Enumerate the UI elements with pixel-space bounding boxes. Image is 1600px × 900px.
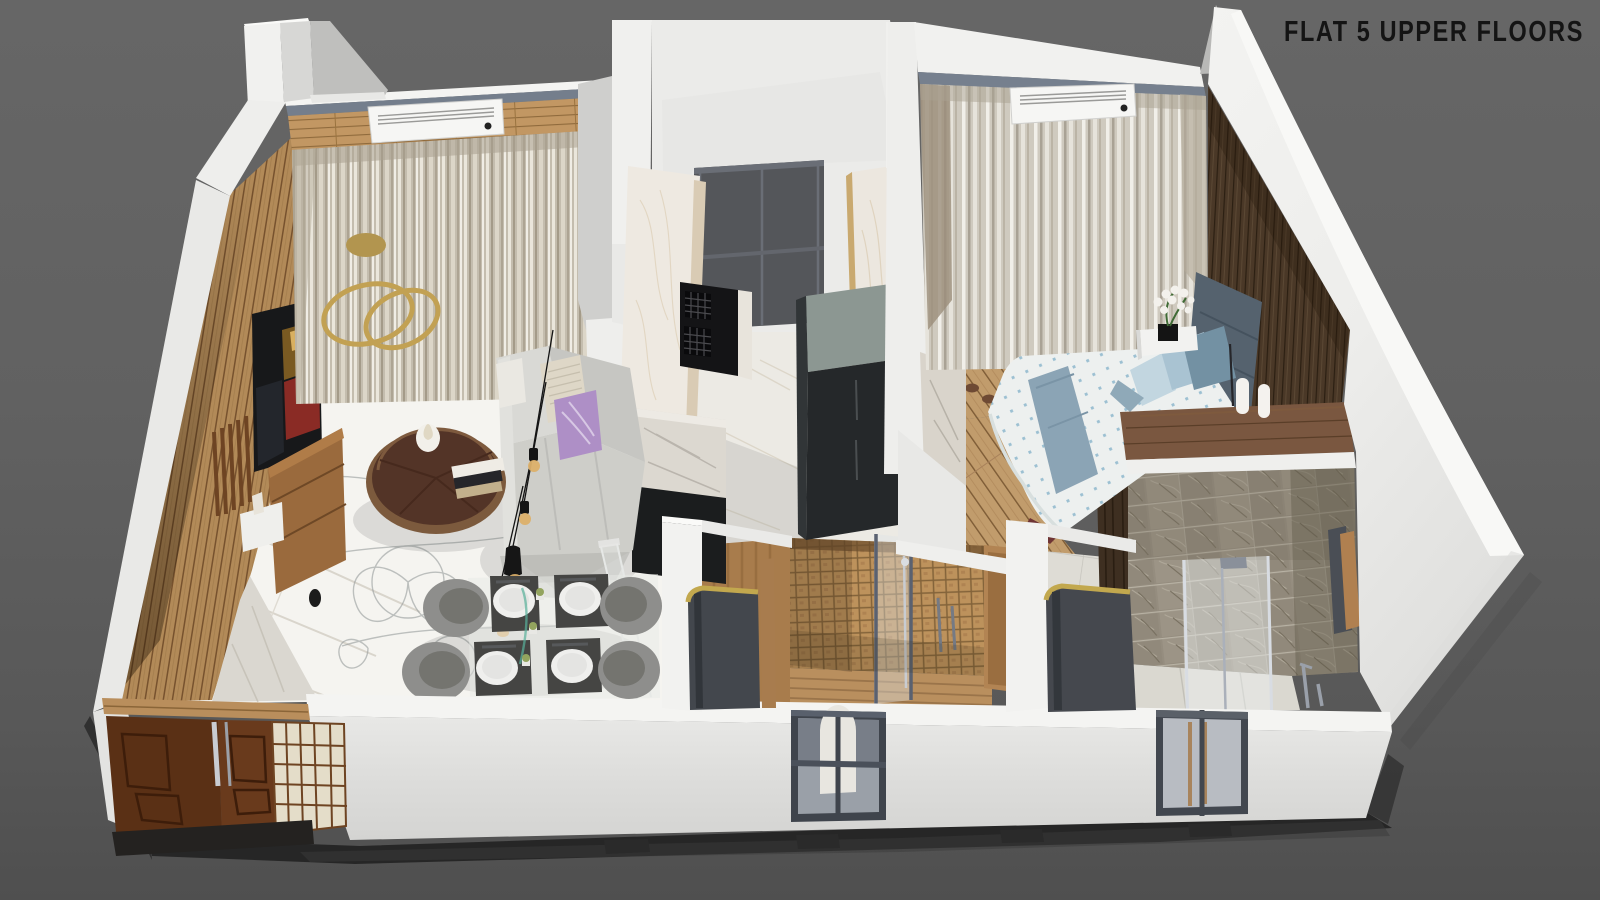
svg-text:FLAT 5 UPPER FLOORS: FLAT 5 UPPER FLOORS [1284,16,1584,48]
